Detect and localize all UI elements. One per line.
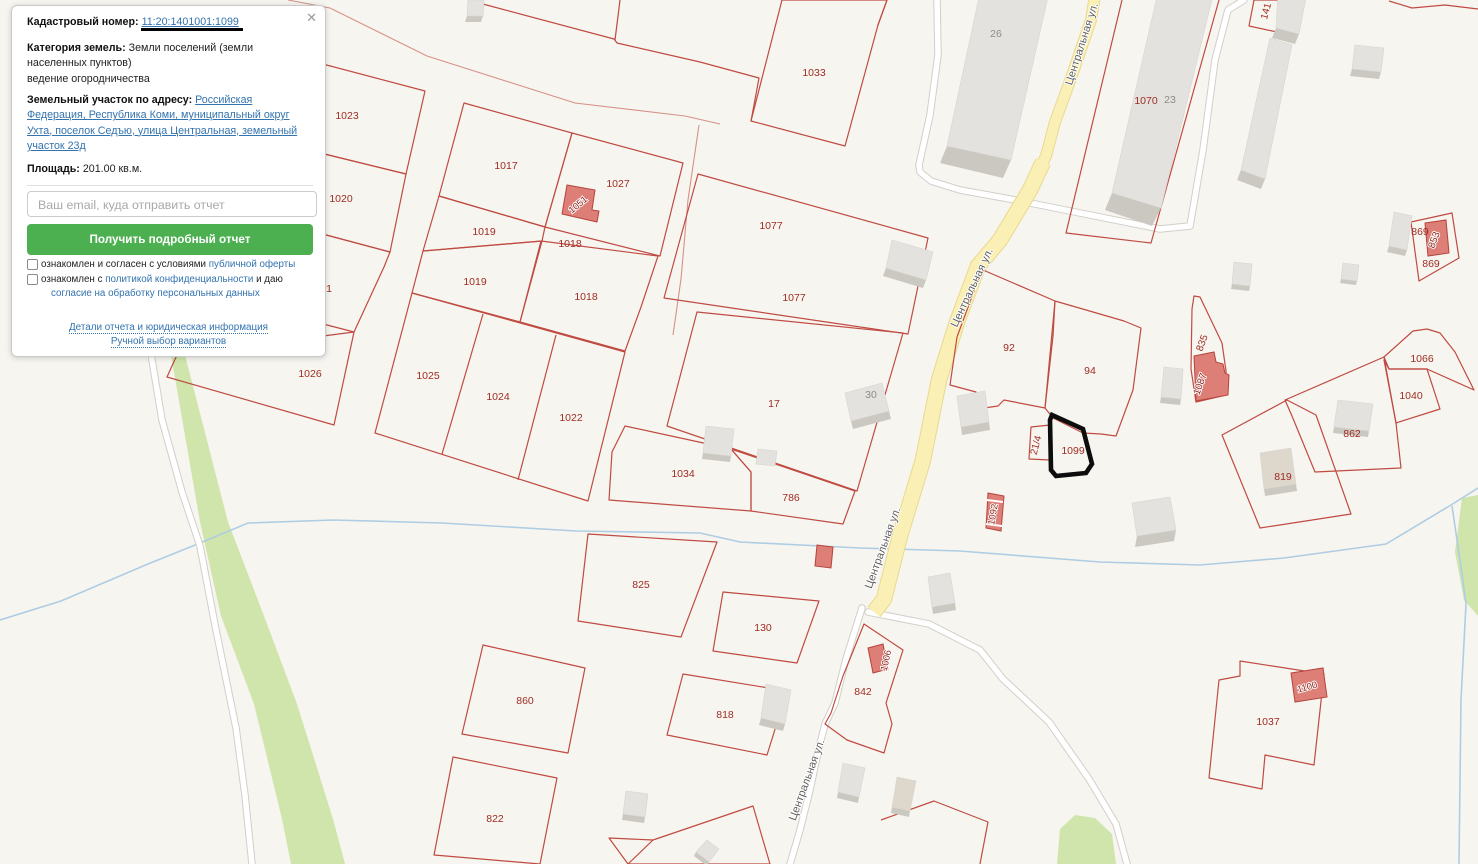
svg-text:1070: 1070 <box>1134 95 1158 107</box>
svg-text:23: 23 <box>1164 94 1176 106</box>
svg-text:92: 92 <box>1003 342 1015 354</box>
svg-text:1018: 1018 <box>558 238 582 250</box>
svg-text:860: 860 <box>516 695 534 707</box>
svg-text:1019: 1019 <box>463 276 487 288</box>
svg-text:1025: 1025 <box>416 370 440 382</box>
svg-text:822: 822 <box>486 813 504 825</box>
svg-text:1026: 1026 <box>298 368 322 380</box>
svg-text:17: 17 <box>768 398 780 410</box>
svg-text:1020: 1020 <box>329 193 353 205</box>
svg-text:1034: 1034 <box>671 468 695 480</box>
svg-text:94: 94 <box>1084 365 1096 377</box>
svg-text:1019: 1019 <box>472 226 496 238</box>
svg-text:1077: 1077 <box>782 292 806 304</box>
svg-text:1077: 1077 <box>759 220 783 232</box>
svg-text:1040: 1040 <box>1399 390 1423 402</box>
svg-text:842: 842 <box>854 686 872 698</box>
svg-text:1066: 1066 <box>1410 353 1434 365</box>
svg-text:1022: 1022 <box>559 412 583 424</box>
svg-text:869: 869 <box>1411 226 1429 238</box>
svg-text:819: 819 <box>1274 471 1292 483</box>
svg-text:1018: 1018 <box>574 291 598 303</box>
svg-text:1027: 1027 <box>606 178 630 190</box>
svg-text:130: 130 <box>754 622 772 634</box>
svg-text:825: 825 <box>632 579 650 591</box>
svg-text:30: 30 <box>865 389 877 401</box>
svg-text:1037: 1037 <box>1256 716 1280 728</box>
svg-text:26: 26 <box>990 28 1002 40</box>
svg-text:1033: 1033 <box>802 67 826 79</box>
svg-text:1: 1 <box>326 283 332 295</box>
svg-text:1017: 1017 <box>494 160 518 172</box>
svg-text:818: 818 <box>716 709 734 721</box>
svg-text:786: 786 <box>782 492 800 504</box>
svg-text:1023: 1023 <box>335 110 359 122</box>
svg-text:862: 862 <box>1343 428 1361 440</box>
svg-text:1099: 1099 <box>1061 445 1085 457</box>
svg-text:1024: 1024 <box>486 391 510 403</box>
svg-text:869: 869 <box>1422 258 1440 270</box>
